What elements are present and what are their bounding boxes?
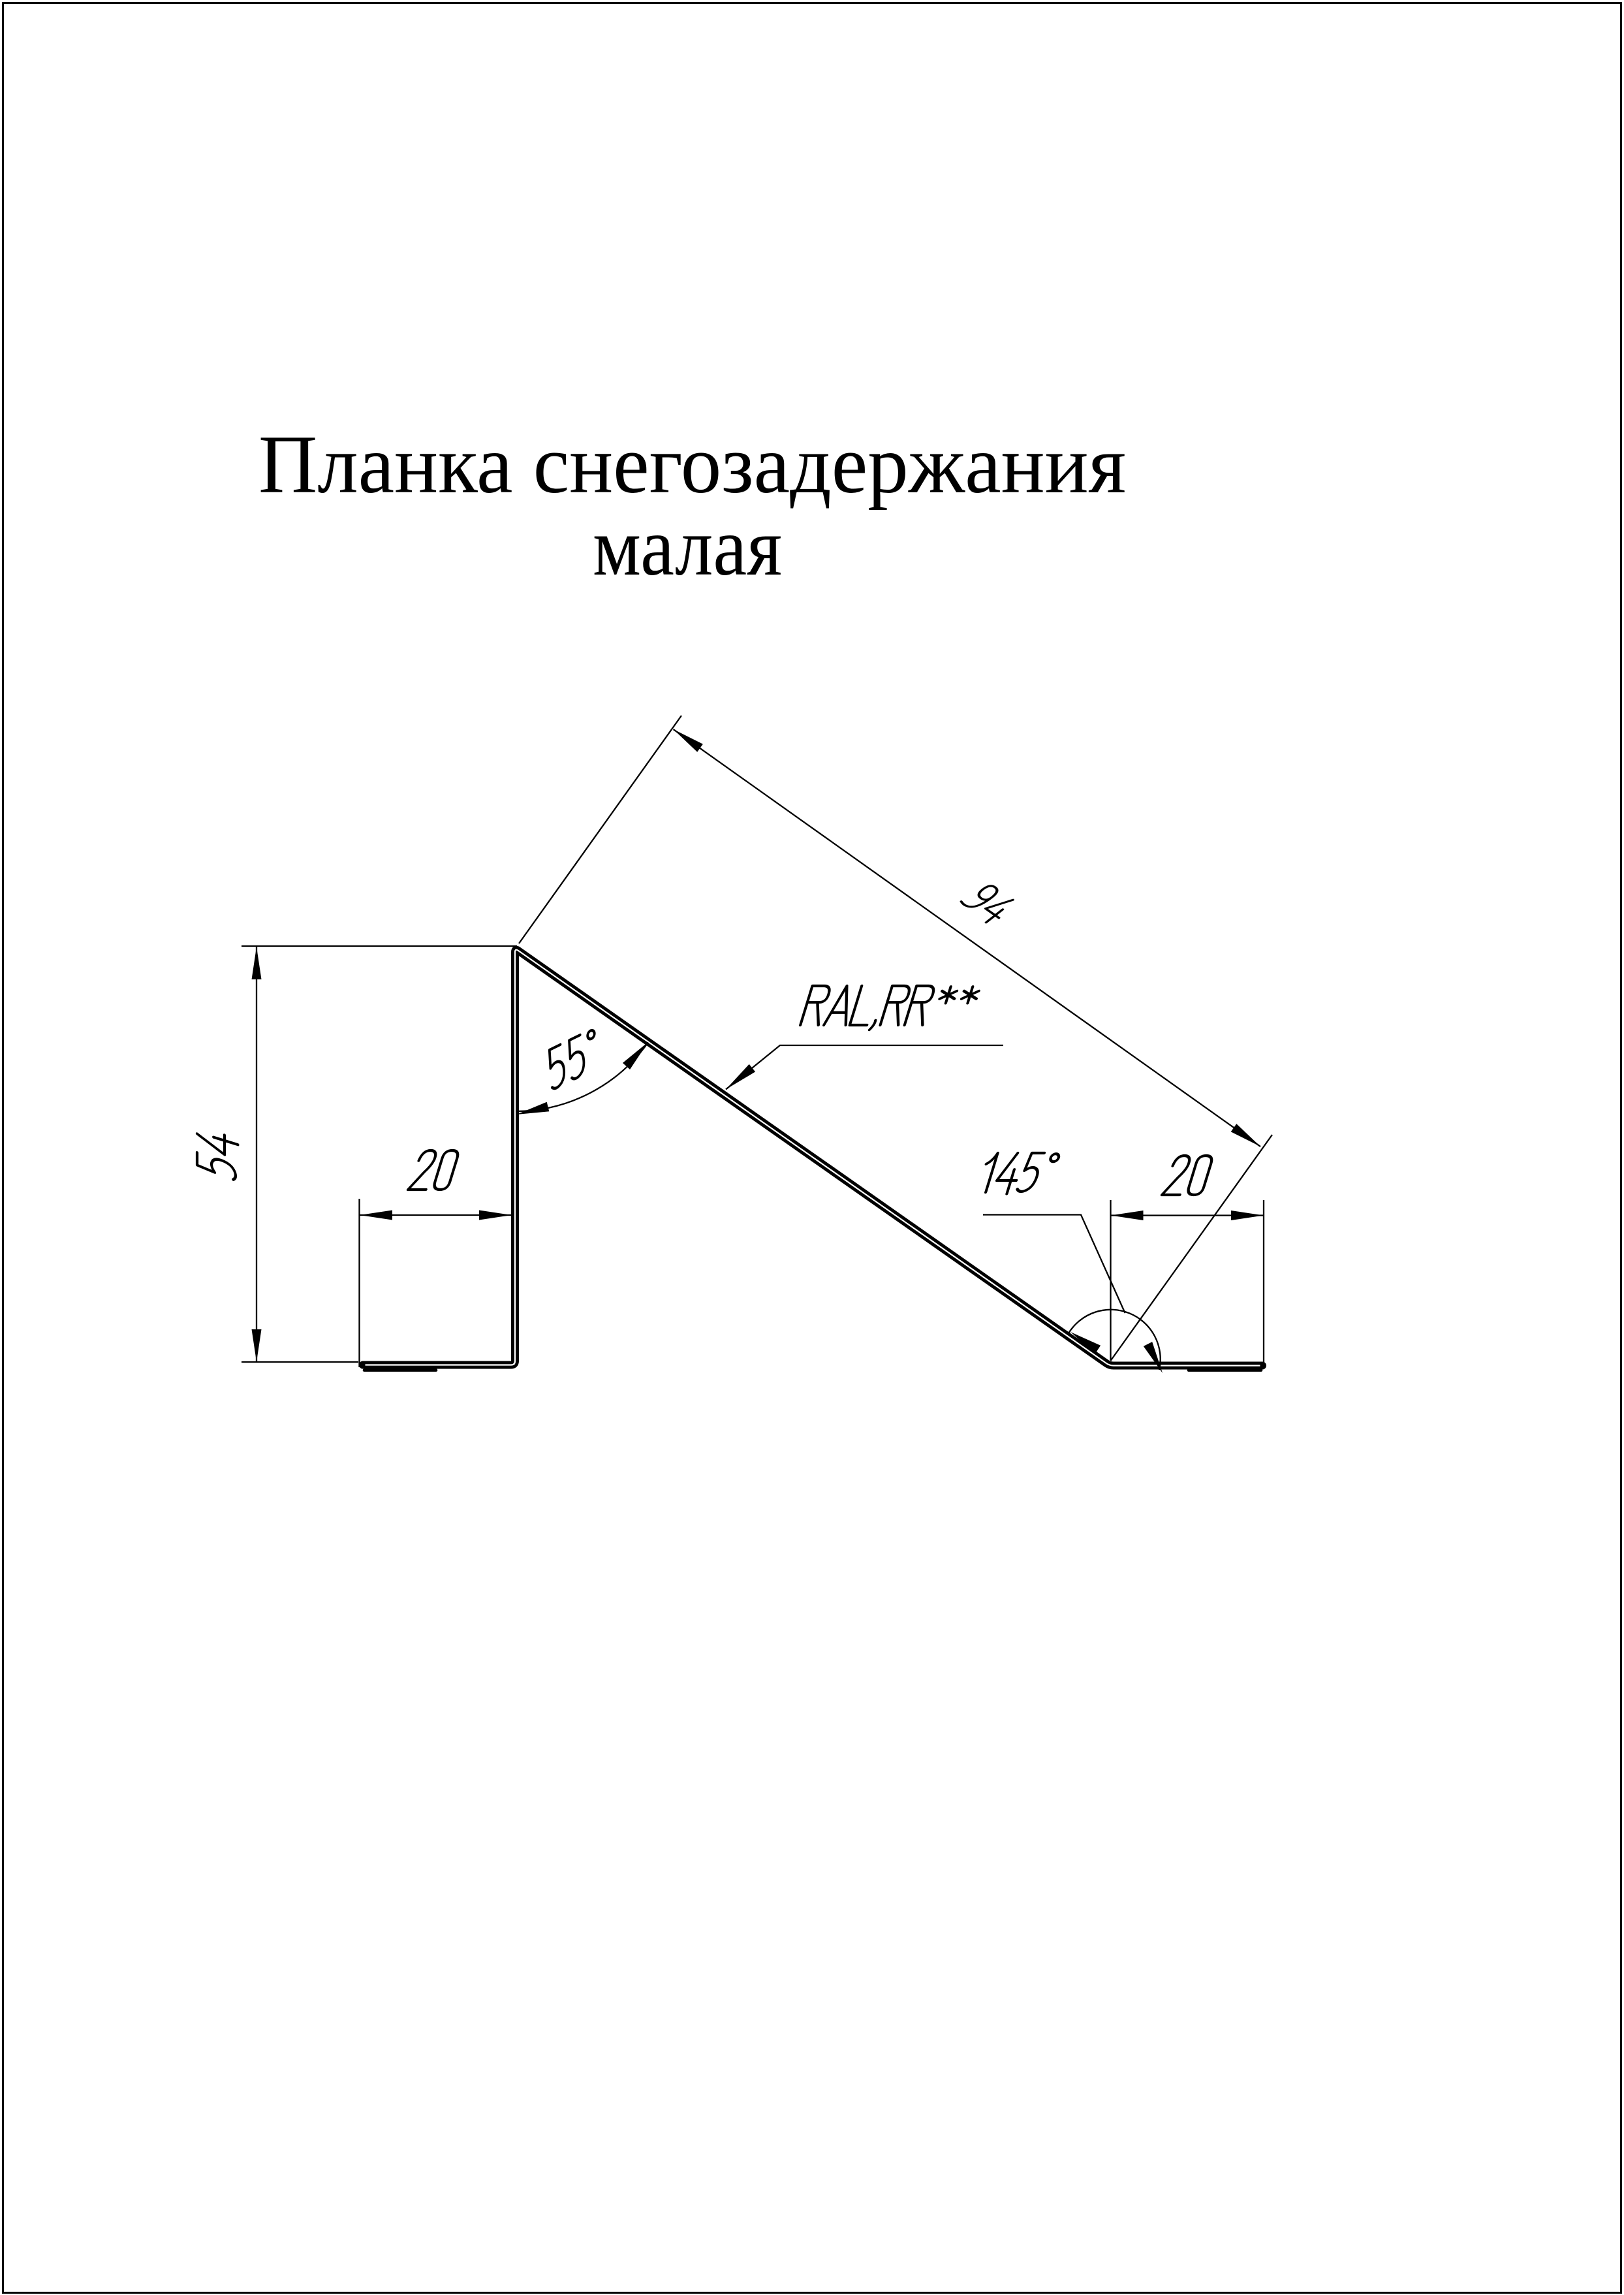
svg-text:малая: малая	[593, 501, 782, 593]
svg-text:Планка снегозадержания: Планка снегозадержания	[258, 419, 1126, 511]
